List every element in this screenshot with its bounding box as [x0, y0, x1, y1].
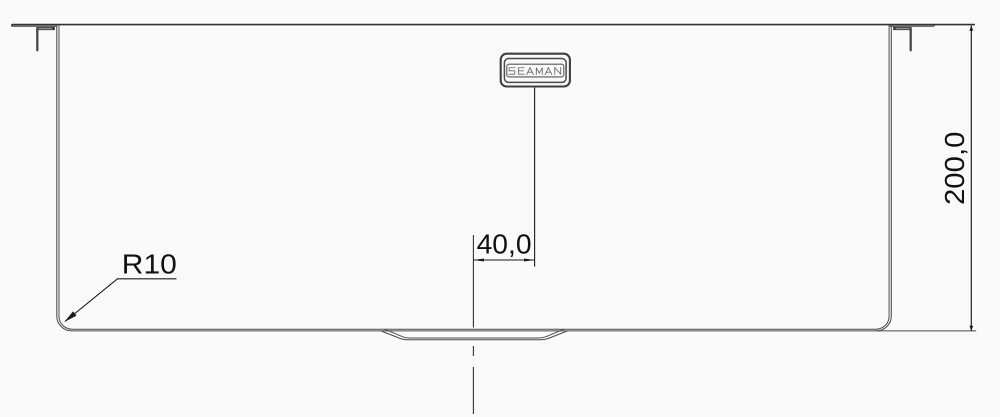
svg-text:40,0: 40,0 — [477, 229, 532, 260]
svg-text:R10: R10 — [122, 249, 177, 280]
svg-text:200,0: 200,0 — [939, 132, 970, 206]
